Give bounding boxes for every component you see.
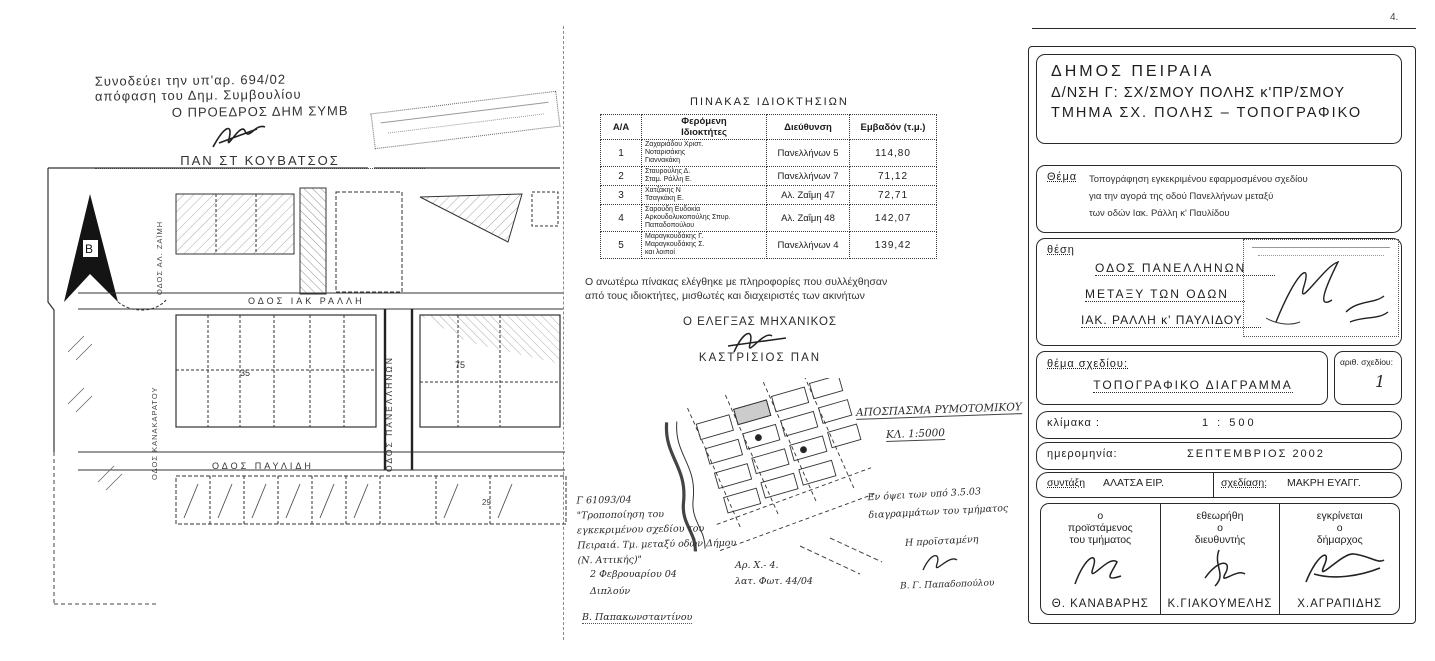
lot-number-a: 35 xyxy=(240,368,250,378)
row-area: 142,07 xyxy=(850,205,937,232)
corner-mark: 4. xyxy=(1390,12,1398,23)
row-address: Πανελλήνων 5 xyxy=(767,140,850,167)
draft-value: ΜΑΚΡΗ ΕΥΑΓΓ. xyxy=(1287,477,1361,489)
draft-label: σχεδίαση: xyxy=(1221,477,1267,489)
svg-text:Β: Β xyxy=(85,242,93,256)
row-index: 3 xyxy=(601,186,642,205)
table-row: 4 Σαρούδη Ευδοκία Αρκουδολυκοπούλης Σπυρ… xyxy=(601,205,937,232)
approval-cell-mayor: εγκρίνεται ο δήμαρχος Χ.ΑΓΡΑΠΙΔΗΣ xyxy=(1280,504,1399,614)
street-label-iak-ralli: ΟΔΟΣ ΙΑΚ ΡΑΛΛΗ xyxy=(248,296,365,306)
excerpt-map-scale: ΚΛ. 1:5000 xyxy=(886,427,945,442)
handwritten-note-center: Αρ. Χ.- 4. λατ. Φωτ. 44/04 xyxy=(735,558,813,590)
row-address: Πανελλήνων 4 xyxy=(767,232,850,259)
thesi-line-2: ΜΕΤΑΞΥ ΤΩΝ ΟΔΩΝ xyxy=(1085,287,1245,302)
date-label: ημερομηνία: xyxy=(1047,448,1118,460)
ownership-table-header-row: Α/Α Φερόμενη Ιδιοκτήτες Διεύθυνση Εμβαδό… xyxy=(601,115,937,140)
table-row: 2 Σταυρούλης Δ. Σταμ. Ράλλη Ε. Πανελλήνω… xyxy=(601,167,937,186)
approval-name: Κ.ΓΙΑΚΟΥΜΕΛΗΣ xyxy=(1161,598,1280,610)
col-header-address: Διεύθυνση xyxy=(767,115,850,140)
drawing-subject-value: ΤΟΠΟΓΡΑΦΙΚΟ ΔΙΑΓΡΑΜΜΑ xyxy=(1093,378,1293,393)
street-label-left: ΟΔΟΣ ΚΑΝΑΚΑΡΑΤΟΥ xyxy=(150,360,159,480)
drawing-subject-box: θέμα σχεδίου: ΤΟΠΟΓΡΑΦΙΚΟ ΔΙΑΓΡΑΜΜΑ xyxy=(1036,351,1328,405)
approval-stamp xyxy=(1243,239,1399,337)
engineer-name: ΚΑΣΤΡΙΣΙΟΣ ΠΑΝ xyxy=(660,352,860,364)
approval-cell-head-of-section: ο προϊστάμενος του τμήματος Θ. ΚΑΝΑΒΑΡΗΣ xyxy=(1041,504,1161,614)
thema-label: Θέμα xyxy=(1047,171,1077,183)
col-header-index: Α/Α xyxy=(601,115,642,140)
row-address: Αλ. Ζαΐμη 47 xyxy=(767,186,850,205)
row-owners: Χατζάκης Ν Τσαγκάκη Ε. xyxy=(642,186,767,205)
drawing-number-box: αριθ. σχεδίου: 1 xyxy=(1334,351,1402,405)
handwritten-note-right: Εν όψει των υπό 3.5.03 διαγραμμάτων του … xyxy=(867,481,1029,525)
author-value: ΑΛΑΤΣΑ ΕΙΡ. xyxy=(1103,477,1164,489)
row-owners: Σταυρούλης Δ. Σταμ. Ράλλη Ε. xyxy=(642,167,767,186)
author-box: συντάξη ΑΛΑΤΣΑ ΕΙΡ. σχεδίαση: ΜΑΚΡΗ ΕΥΑΓ… xyxy=(1036,472,1402,498)
approval-role: εθεωρήθη ο διευθυντής xyxy=(1161,510,1280,546)
table-row: 5 Μαραγκουδάκης Γ. Μαραγκουδάκης Σ. και … xyxy=(601,232,937,259)
drawing-number-value: 1 xyxy=(1375,372,1385,391)
street-label-panellinon: ΟΔΟΣ ΠΑΝΕΛΛΗΝΩΝ xyxy=(384,322,394,472)
row-owners: Σαρούδη Ευδοκία Αρκουδολυκοπούλης Σπυρ. … xyxy=(642,205,767,232)
thesi-line-3: ΙΑΚ. ΡΑΛΛΗ κ' ΠΑΥΛΙΔΟΥ xyxy=(1081,313,1261,328)
titleblock-header-box: ΔΗΜΟΣ ΠΕΙΡΑΙΑ Δ/ΝΣΗ Γ: ΣΧ/ΣΜΟΥ ΠΟΛΗΣ κ'Π… xyxy=(1036,54,1402,144)
ownership-table-title: ΠΙΝΑΚΑΣ ΙΔΙΟΚΤΗΣΙΩΝ xyxy=(690,96,849,108)
handwritten-name-left: Β. Παπακωνσταντίνου xyxy=(582,612,692,624)
col-header-owners: Φερόμενη Ιδιοκτήτες xyxy=(642,115,767,140)
drawing-subject-label: θέμα σχεδίου: xyxy=(1047,358,1128,370)
survey-plan-drawing: Β xyxy=(38,152,583,622)
scale-label: κλίμακα : xyxy=(1047,417,1100,429)
titleblock-thema-box: Θέμα Τοπογράφηση εγκεκριμένου εφαρμοσμέν… xyxy=(1036,165,1402,233)
row-area: 72,71 xyxy=(850,186,937,205)
handwritten-name-right: Β. Γ. Παπαδοπούλου xyxy=(900,578,995,591)
approval-name: Χ.ΑΓΡΑΠΙΔΗΣ xyxy=(1280,598,1399,610)
author-divider xyxy=(1213,473,1214,497)
row-index: 2 xyxy=(601,167,642,186)
approval-cell-director: εθεωρήθη ο διευθυντής Κ.ΓΙΑΚΟΥΜΕΛΗΣ xyxy=(1161,504,1281,614)
approval-role: ο προϊστάμενος του τμήματος xyxy=(1041,510,1160,546)
drawing-number-label: αριθ. σχεδίου: xyxy=(1340,357,1393,367)
row-index: 1 xyxy=(601,140,642,167)
department: ΤΜΗΜΑ ΣΧ. ΠΟΛΗΣ – ΤΟΠΟΓΡΑΦΙΚΟ xyxy=(1051,105,1401,121)
directorate: Δ/ΝΣΗ Γ: ΣΧ/ΣΜΟΥ ΠΟΛΗΣ κ'ΠΡ/ΣΜΟΥ xyxy=(1051,85,1401,101)
street-label-zaimi: ΟΔΟΣ ΑΛ. ΖΑΪΜΗ xyxy=(155,185,164,295)
table-footnote: Ο ανωτέρω πίνακας ελέγθηκε με πληροφορίε… xyxy=(585,275,955,303)
col-header-area: Εμβαδόν (τ.μ.) xyxy=(850,115,937,140)
ownership-table: Α/Α Φερόμενη Ιδιοκτήτες Διεύθυνση Εμβαδό… xyxy=(600,114,937,259)
row-address: Πανελλήνων 7 xyxy=(767,167,850,186)
stamp-signature xyxy=(1246,252,1396,332)
row-owners: Ζαχαριάδου Χριστ. Νοταρισάκης Γιαννακάκη xyxy=(642,140,767,167)
author-label: συντάξη xyxy=(1047,477,1085,489)
approval-signature xyxy=(1175,548,1265,588)
scale-value: 1 : 500 xyxy=(1202,417,1257,429)
approvals-box: ο προϊστάμενος του τμήματος Θ. ΚΑΝΑΒΑΡΗΣ… xyxy=(1040,503,1400,615)
row-index: 4 xyxy=(601,205,642,232)
thema-text: Τοπογράφηση εγκεκριμένου εφαρμοσμένου σχ… xyxy=(1089,171,1389,222)
row-address: Αλ. Ζαΐμη 48 xyxy=(767,205,850,232)
approval-name: Θ. ΚΑΝΑΒΑΡΗΣ xyxy=(1041,598,1160,610)
handwritten-role-right: Η προϊσταμένη xyxy=(905,534,979,549)
decision-line-2: απόφαση του Δημ. Συμβουλίου xyxy=(95,85,425,103)
date-box: ημερομηνία: ΣΕΠΤΕΜΒΡΙΟΣ 2002 xyxy=(1036,442,1402,470)
row-area: 114,80 xyxy=(850,140,937,167)
agency-name: ΔΗΜΟΣ ΠΕΙΡΑΙΑ xyxy=(1051,63,1401,81)
row-index: 5 xyxy=(601,232,642,259)
row-owners: Μαραγκουδάκης Γ. Μαραγκουδάκης Σ. και λο… xyxy=(642,232,767,259)
lot-number-b: 75 xyxy=(455,360,465,370)
street-label-pavlidi: ΟΔΟΣ ΠΑΥΛΙΔΗ xyxy=(212,461,314,471)
sheet-top-edge xyxy=(1032,28,1416,29)
approval-signature xyxy=(1055,548,1145,588)
handwritten-date-left: 2 Φεβρουαρίου 04 Διπλούν xyxy=(590,566,730,600)
date-value: ΣΕΠΤΕΜΒΡΙΟΣ 2002 xyxy=(1187,448,1325,460)
thesi-label: θέση xyxy=(1047,244,1075,256)
lot-number-c: 29 xyxy=(482,498,491,507)
approval-role: εγκρίνεται ο δήμαρχος xyxy=(1280,510,1399,546)
table-row: 3 Χατζάκης Ν Τσαγκάκη Ε. Αλ. Ζαΐμη 47 72… xyxy=(601,186,937,205)
scale-box: κλίμακα : 1 : 500 xyxy=(1036,411,1402,439)
handwritten-signature-right xyxy=(915,548,965,576)
titleblock-thesi-box: θέση ΟΔΟΣ ΠΑΝΕΛΛΗΝΩΝ ΜΕΤΑΞΥ ΤΩΝ ΟΔΩΝ ΙΑΚ… xyxy=(1036,238,1402,346)
row-area: 71,12 xyxy=(850,167,937,186)
approval-signature xyxy=(1290,544,1390,588)
scanned-topographic-sheet: Συνοδεύει την υπ'αρ. 694/02 απόφαση του … xyxy=(0,0,1435,661)
row-area: 139,42 xyxy=(850,232,937,259)
table-row: 1 Ζαχαριάδου Χριστ. Νοταρισάκης Γιαννακά… xyxy=(601,140,937,167)
president-signature xyxy=(205,119,295,153)
handwritten-note-left: Γ 61093/04 "Τροποποίηση του εγκεκριμένου… xyxy=(576,491,747,569)
